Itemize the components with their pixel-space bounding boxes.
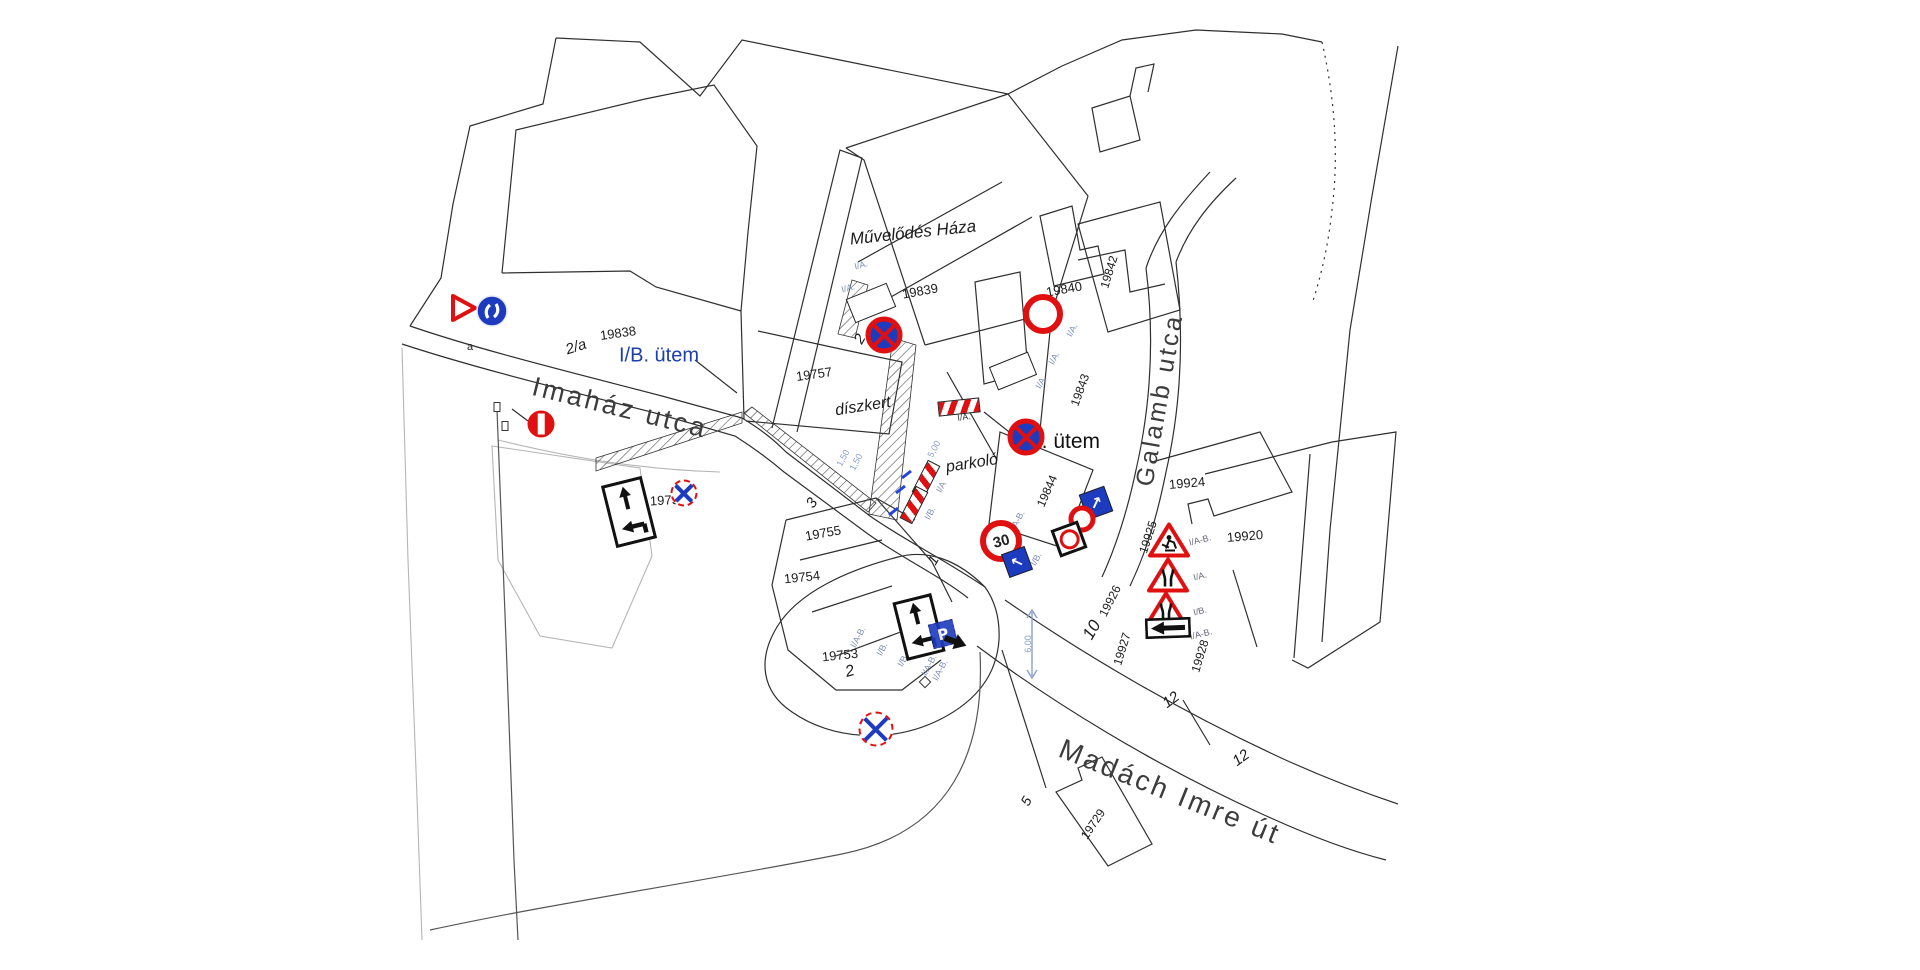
- sign-post-marker: [502, 421, 509, 431]
- speed-limit-value: 30: [991, 531, 1012, 552]
- removed-no-stopping-sign: [671, 480, 698, 507]
- removed-no-stopping-sign: [859, 712, 894, 747]
- phase-ib-label: I/B. ütem: [619, 345, 699, 368]
- traffic-plan-map: Imaház utca Galamb utca Madách Imre út M…: [0, 0, 1920, 970]
- arrow-nw-icon: ↖: [1008, 551, 1026, 572]
- house-number: a: [467, 341, 473, 353]
- sign-post-marker: [494, 402, 501, 412]
- roadworks-triangle-sign: [1148, 522, 1190, 559]
- ring-icon: [1056, 526, 1082, 552]
- no-stopping-sign: [866, 317, 903, 354]
- parcel-number: 19924: [1168, 474, 1205, 492]
- road-narrows-triangle-sign: [1147, 557, 1189, 594]
- no-entry-sign: [528, 411, 555, 438]
- no-stopping-sign: [1008, 419, 1045, 456]
- parcel-number: 19920: [1226, 527, 1263, 545]
- priority-direction-sign: [476, 295, 508, 327]
- no-vehicles-sign: [1023, 294, 1063, 334]
- map-linework: [0, 0, 1920, 970]
- left-arrow-board-sign: [1145, 617, 1192, 640]
- dimension-label: 6,00: [1023, 635, 1033, 653]
